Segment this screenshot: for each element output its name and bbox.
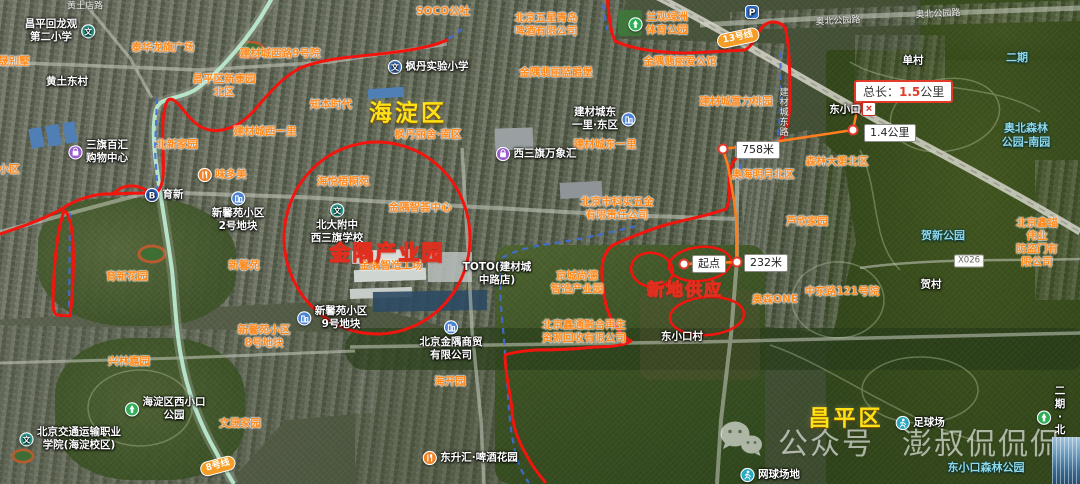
watermark-account: 澎叔侃侃侃 xyxy=(902,419,1062,463)
poi-label-text: 东升汇·啤酒花园 xyxy=(440,451,518,464)
svg-text:P: P xyxy=(749,8,756,19)
measure-distance-label: 232米 xyxy=(744,254,788,272)
parking-poi: P xyxy=(745,5,760,20)
pk-icon: P xyxy=(745,5,760,20)
measure-close-button[interactable]: × xyxy=(862,102,876,116)
subway-icon: B xyxy=(145,188,160,203)
map-poi-label: 昌平区新康园 北区 xyxy=(193,73,256,99)
map-poi-label: 兴林嘉园 xyxy=(108,355,150,368)
map-poi-label: 兰观绿洲 体育公园 xyxy=(628,11,688,37)
measure-total-value: 1.5 xyxy=(899,85,920,99)
poi-label-text: 网球场地 xyxy=(758,468,800,481)
map-poi-label: 奥海明月北区 xyxy=(732,168,795,181)
poi-label-text: 三旗百汇 购物中心 xyxy=(86,139,128,165)
poi-label-text: 建材城东 一里·东区 xyxy=(572,106,618,132)
watermark-platform: 公众号 xyxy=(778,419,874,463)
map-poi-label: 中东路121号院 xyxy=(805,285,879,298)
poi-label-text: 味多美 xyxy=(215,168,247,181)
park-icon xyxy=(125,402,140,417)
map-poi-label: TOTO(建材城 中路店) xyxy=(463,261,531,287)
map-poi-label: 知本时代 xyxy=(310,98,352,111)
svg-text:文: 文 xyxy=(23,434,31,444)
svg-text:B: B xyxy=(149,191,156,201)
bakery-icon xyxy=(422,451,437,466)
map-poi-label: 新馨苑小区 2号地块 xyxy=(212,191,265,233)
map-poi-label: 二期 xyxy=(1006,51,1028,65)
road-label: 黄土店路 xyxy=(67,1,103,12)
bakery-icon xyxy=(197,168,212,183)
map-poi-label: 东升汇·啤酒花园 xyxy=(422,451,518,466)
map-poi-label: 东小口村 xyxy=(661,330,703,343)
annotation-jinyu-industrial-park: 金隅产业园 xyxy=(330,240,445,266)
road-label: 奥北公园路 xyxy=(915,8,961,22)
station-label-dongxiaokou: 东小口 xyxy=(829,103,861,116)
sport-icon xyxy=(740,468,755,483)
school-icon: 文 xyxy=(80,24,95,39)
map-poi-label: 单村 xyxy=(903,54,924,67)
map-poi-label: 建材城西路9号院 xyxy=(240,47,321,60)
bld-icon xyxy=(231,191,246,206)
map-poi-label: 泰华龙旗广场 xyxy=(132,41,195,54)
school-icon: 文 xyxy=(330,203,345,218)
school-icon: 文 xyxy=(19,432,34,447)
map-poi-label: 北京市科实五金 有限责任公司 xyxy=(580,196,654,222)
map-poi-label: 海悦梧桐苑 xyxy=(317,175,370,188)
map-poi-label: 文晟家园 xyxy=(219,417,261,430)
poi-label-text: 北京交通运输职业 学院(海淀校区) xyxy=(37,426,121,452)
svg-text:文: 文 xyxy=(84,26,92,36)
poi-label-text: 新馨苑小区 2号地块 xyxy=(212,207,265,233)
subway-line-8-badge: 8号线 xyxy=(199,454,238,478)
bld-icon xyxy=(297,311,312,326)
map-poi-label: 森林大第北区 xyxy=(806,155,869,168)
map-poi-label: 小区 xyxy=(0,163,20,176)
svg-text:文: 文 xyxy=(333,205,341,215)
map-poi-label: 奥北森林 公园-南园 xyxy=(1002,121,1051,149)
measure-distance-label: 1.4公里 xyxy=(864,124,916,142)
map-poi-label: 金隅智荟中心 xyxy=(389,201,452,214)
map-poi-label: 北京鑫锚伟业 防盗门有限公司 xyxy=(1016,217,1059,270)
svg-text:文: 文 xyxy=(391,62,399,72)
satellite-map[interactable]: SOCO公社泰华龙旗广场建材城西路9号院晟别墅昌平区新康园 北区知本时代建材城西… xyxy=(0,0,1080,484)
map-poi-label: 三旗百汇 购物中心 xyxy=(68,139,128,165)
map-poi-label: 建材城西一里 xyxy=(234,125,297,138)
map-poi-label: B育新 xyxy=(145,188,184,203)
measure-start-label: 起点 xyxy=(692,255,726,273)
measure-total-box: 总长：1.5公里 xyxy=(854,80,953,103)
road-number-label: X026 xyxy=(954,255,984,268)
subway-line-13-badge: 13号线 xyxy=(716,26,761,50)
map-poi-label: 北京金隅商贸 有限公司 xyxy=(420,320,483,362)
poi-label-text: 西三旗万象汇 xyxy=(514,147,577,160)
map-poi-label: 贺新公园 xyxy=(921,229,965,243)
watermark: 公众号 澎叔侃侃侃 xyxy=(716,418,1062,464)
annotation-new-land-supply: 新地供应 xyxy=(647,280,723,301)
map-poi-label: 京城尚德 智造产业园 xyxy=(551,270,604,296)
map-poi-label: 建材城富力桃园 xyxy=(699,95,773,108)
map-labels-layer: SOCO公社泰华龙旗广场建材城西路9号院晟别墅昌平区新康园 北区知本时代建材城西… xyxy=(0,0,1080,484)
map-poi-label: 海淀区西小口 公园 xyxy=(125,396,206,422)
map-poi-label: 文北京交通运输职业 学院(海淀校区) xyxy=(19,426,121,452)
map-poi-label: 奥森ONE xyxy=(752,293,798,306)
poi-label-text: 海淀区西小口 公园 xyxy=(143,396,206,422)
map-poi-label: 网球场地 xyxy=(740,468,800,483)
shop-icon xyxy=(68,145,83,160)
map-poi-label: 北京五星青岛 啤酒有限公司 xyxy=(515,12,578,38)
poi-label-text: 北京金隅商贸 有限公司 xyxy=(420,336,483,362)
map-poi-label: 北新家园 xyxy=(156,138,198,151)
shop-icon xyxy=(496,147,511,162)
poi-label-text: 昌平回龙观 第二小学 xyxy=(25,18,78,44)
park-icon xyxy=(628,17,643,32)
measure-distance-label: 758米 xyxy=(736,141,780,159)
road-label: 奥北公园路 xyxy=(815,15,861,29)
bld-icon xyxy=(621,112,636,127)
poi-label-text: 新馨苑小区 9号地块 xyxy=(315,305,368,331)
map-poi-label: 新馨苑 xyxy=(228,259,260,272)
poi-label-text: 枫丹实验小学 xyxy=(406,60,469,73)
measure-total-prefix: 总长： xyxy=(863,85,899,99)
map-poi-label: 海开园 xyxy=(434,375,466,388)
map-poi-label: 枫丹丽舍·南区 xyxy=(395,128,462,141)
map-poi-label: 金隅翡丽爱公馆 xyxy=(643,55,717,68)
map-poi-label: 贺村 xyxy=(921,278,942,291)
poi-label-text: 兰观绿洲 体育公园 xyxy=(646,11,688,37)
map-poi-label: 黄土东村 xyxy=(46,75,88,88)
wechat-icon xyxy=(716,418,766,464)
bld-icon xyxy=(444,320,459,335)
map-poi-label: 新馨苑小区 8号地块 xyxy=(238,324,291,350)
map-poi-label: 北京鑫通融合再生 资源回收有限公司 xyxy=(542,319,626,345)
school2-icon: 文 xyxy=(388,60,403,75)
map-poi-label: 建材城东 一里·东区 xyxy=(572,106,636,132)
map-poi-label: 西三旗万象汇 xyxy=(496,147,577,162)
map-poi-label: 建材城东一里 xyxy=(574,138,637,151)
map-poi-label: 育新花园 xyxy=(106,270,148,283)
district-label-haidian: 海淀区 xyxy=(369,100,447,129)
map-poi-label: 新馨苑小区 9号地块 xyxy=(297,305,368,331)
map-poi-label: 味多美 xyxy=(197,168,247,183)
measure-total-unit: 公里 xyxy=(920,85,944,99)
map-poi-label: 文昌平回龙观 第二小学 xyxy=(25,18,96,44)
map-poi-label: 芦欣家园 xyxy=(786,215,828,228)
road-label: 建材城东路 xyxy=(776,87,787,137)
photo-thumbnail xyxy=(1052,437,1080,484)
map-poi-label: 金隅翡丽蓝爵堡 xyxy=(519,66,593,79)
map-poi-label: 文北大附中 西三旗学校 xyxy=(311,203,364,245)
poi-label-text: 育新 xyxy=(163,188,184,201)
map-poi-label: 晟别墅 xyxy=(0,55,30,68)
map-poi-label: 文枫丹实验小学 xyxy=(388,60,469,75)
map-poi-label: SOCO公社 xyxy=(416,5,470,18)
